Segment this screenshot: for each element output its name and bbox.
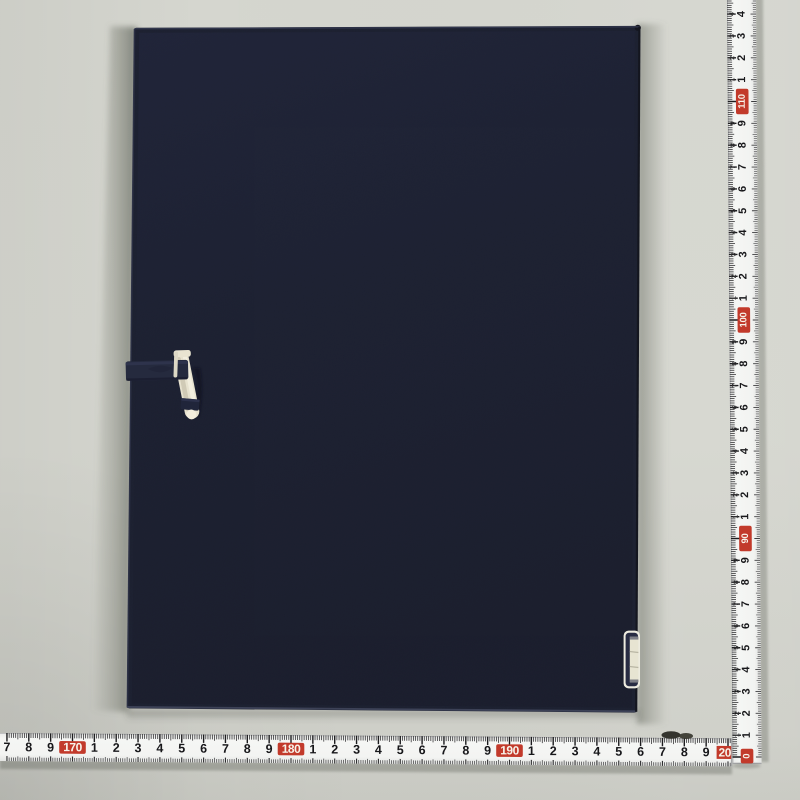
svg-text:3: 3 bbox=[739, 470, 751, 476]
svg-text:2: 2 bbox=[331, 743, 338, 757]
svg-text:4: 4 bbox=[156, 741, 163, 755]
svg-text:9: 9 bbox=[703, 745, 710, 759]
svg-text:110: 110 bbox=[737, 94, 748, 108]
svg-text:2: 2 bbox=[113, 741, 120, 755]
svg-text:6: 6 bbox=[740, 623, 752, 629]
svg-text:100: 100 bbox=[738, 313, 749, 328]
svg-text:8: 8 bbox=[681, 745, 688, 759]
svg-text:190: 190 bbox=[500, 743, 519, 757]
svg-text:180: 180 bbox=[282, 742, 301, 756]
svg-text:4: 4 bbox=[739, 447, 751, 454]
svg-text:4: 4 bbox=[593, 744, 600, 758]
svg-text:1: 1 bbox=[736, 77, 748, 83]
svg-text:7: 7 bbox=[222, 742, 229, 756]
svg-text:1: 1 bbox=[309, 742, 316, 756]
svg-text:3: 3 bbox=[135, 741, 142, 755]
svg-text:1: 1 bbox=[91, 741, 98, 755]
svg-text:4: 4 bbox=[737, 229, 749, 236]
svg-text:3: 3 bbox=[737, 251, 749, 257]
svg-text:1: 1 bbox=[738, 295, 750, 301]
svg-text:170: 170 bbox=[63, 740, 82, 754]
svg-text:20: 20 bbox=[719, 746, 732, 760]
svg-text:9: 9 bbox=[736, 120, 748, 126]
svg-text:2: 2 bbox=[739, 492, 751, 498]
svg-text:9: 9 bbox=[266, 742, 273, 756]
svg-text:7: 7 bbox=[738, 382, 750, 388]
svg-text:5: 5 bbox=[737, 208, 749, 214]
svg-text:6: 6 bbox=[200, 742, 207, 756]
svg-text:6: 6 bbox=[737, 186, 749, 192]
svg-text:7: 7 bbox=[740, 601, 752, 607]
svg-text:9: 9 bbox=[740, 557, 752, 563]
svg-text:8: 8 bbox=[462, 743, 469, 757]
svg-text:2: 2 bbox=[738, 273, 750, 279]
svg-text:1: 1 bbox=[528, 744, 535, 758]
svg-text:4: 4 bbox=[375, 743, 382, 757]
svg-text:4: 4 bbox=[740, 666, 752, 673]
svg-text:5: 5 bbox=[739, 426, 751, 432]
svg-text:8: 8 bbox=[244, 742, 251, 756]
svg-text:5: 5 bbox=[740, 645, 752, 651]
svg-text:1: 1 bbox=[739, 514, 751, 520]
svg-text:9: 9 bbox=[484, 744, 491, 758]
svg-text:9: 9 bbox=[47, 740, 54, 754]
svg-text:8: 8 bbox=[25, 740, 32, 754]
svg-text:1: 1 bbox=[741, 732, 753, 738]
svg-text:2: 2 bbox=[736, 55, 748, 61]
svg-text:3: 3 bbox=[572, 744, 579, 758]
svg-text:5: 5 bbox=[397, 743, 404, 757]
svg-text:7: 7 bbox=[440, 743, 447, 757]
svg-text:2: 2 bbox=[741, 710, 753, 716]
svg-text:3: 3 bbox=[736, 33, 748, 39]
svg-text:9: 9 bbox=[738, 339, 750, 345]
svg-text:0: 0 bbox=[742, 753, 753, 758]
svg-text:7: 7 bbox=[3, 740, 10, 754]
svg-text:5: 5 bbox=[178, 741, 185, 755]
svg-text:90: 90 bbox=[740, 534, 751, 544]
svg-text:2: 2 bbox=[550, 744, 557, 758]
svg-text:7: 7 bbox=[737, 164, 749, 170]
svg-text:6: 6 bbox=[419, 743, 426, 757]
svg-text:6: 6 bbox=[738, 404, 750, 410]
svg-text:4: 4 bbox=[736, 10, 748, 17]
svg-text:3: 3 bbox=[353, 743, 360, 757]
svg-text:8: 8 bbox=[740, 579, 752, 585]
svg-text:3: 3 bbox=[741, 688, 753, 694]
svg-text:6: 6 bbox=[637, 745, 644, 759]
svg-text:8: 8 bbox=[737, 142, 749, 148]
svg-text:8: 8 bbox=[738, 361, 750, 367]
svg-text:7: 7 bbox=[659, 745, 666, 759]
svg-text:5: 5 bbox=[615, 745, 622, 759]
